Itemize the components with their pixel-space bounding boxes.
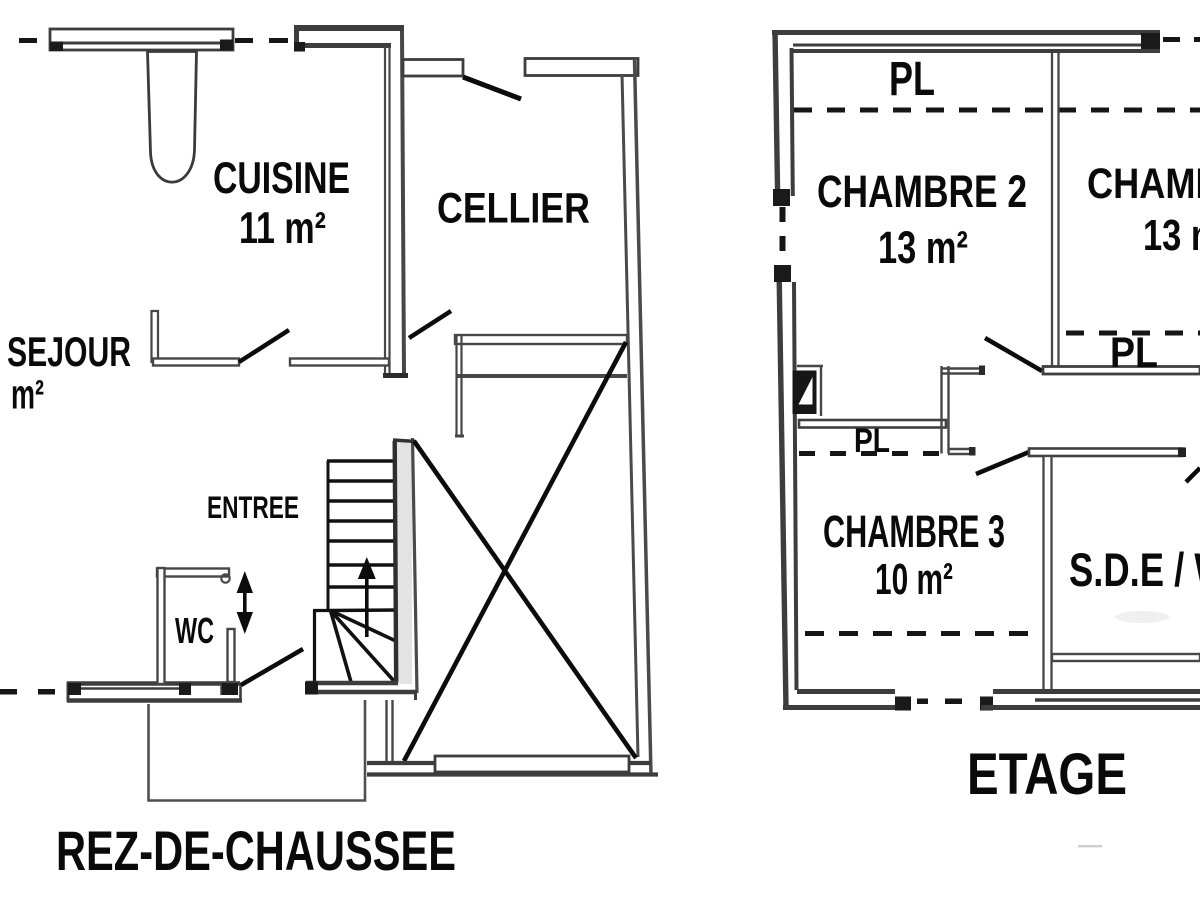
svg-text:ETAGE: ETAGE [967, 742, 1127, 807]
svg-text:ENTREE: ENTREE [207, 489, 299, 525]
svg-text:CHAMBRE 1: CHAMBRE 1 [1087, 160, 1200, 208]
svg-text:WC: WC [175, 610, 214, 651]
svg-text:REZ-DE-CHAUSSEE: REZ-DE-CHAUSSEE [56, 820, 456, 882]
svg-text:S.D.E / WC: S.D.E / WC [1069, 543, 1200, 596]
svg-text:CUISINE: CUISINE [213, 154, 350, 203]
svg-text:11 m²: 11 m² [239, 204, 326, 253]
svg-text:CHAMBRE 2: CHAMBRE 2 [817, 166, 1027, 217]
svg-text:SEJOUR: SEJOUR [7, 328, 131, 375]
svg-text:10 m²: 10 m² [875, 555, 953, 604]
svg-text:13 m²: 13 m² [1143, 211, 1200, 260]
svg-text:CHAMBRE 3: CHAMBRE 3 [823, 506, 1005, 557]
svg-text:PL: PL [1110, 329, 1158, 377]
svg-text:CELLIER: CELLIER [437, 185, 590, 233]
svg-text:PL: PL [889, 52, 935, 106]
svg-text:m²: m² [11, 371, 44, 418]
svg-text:13 m²: 13 m² [878, 222, 968, 273]
